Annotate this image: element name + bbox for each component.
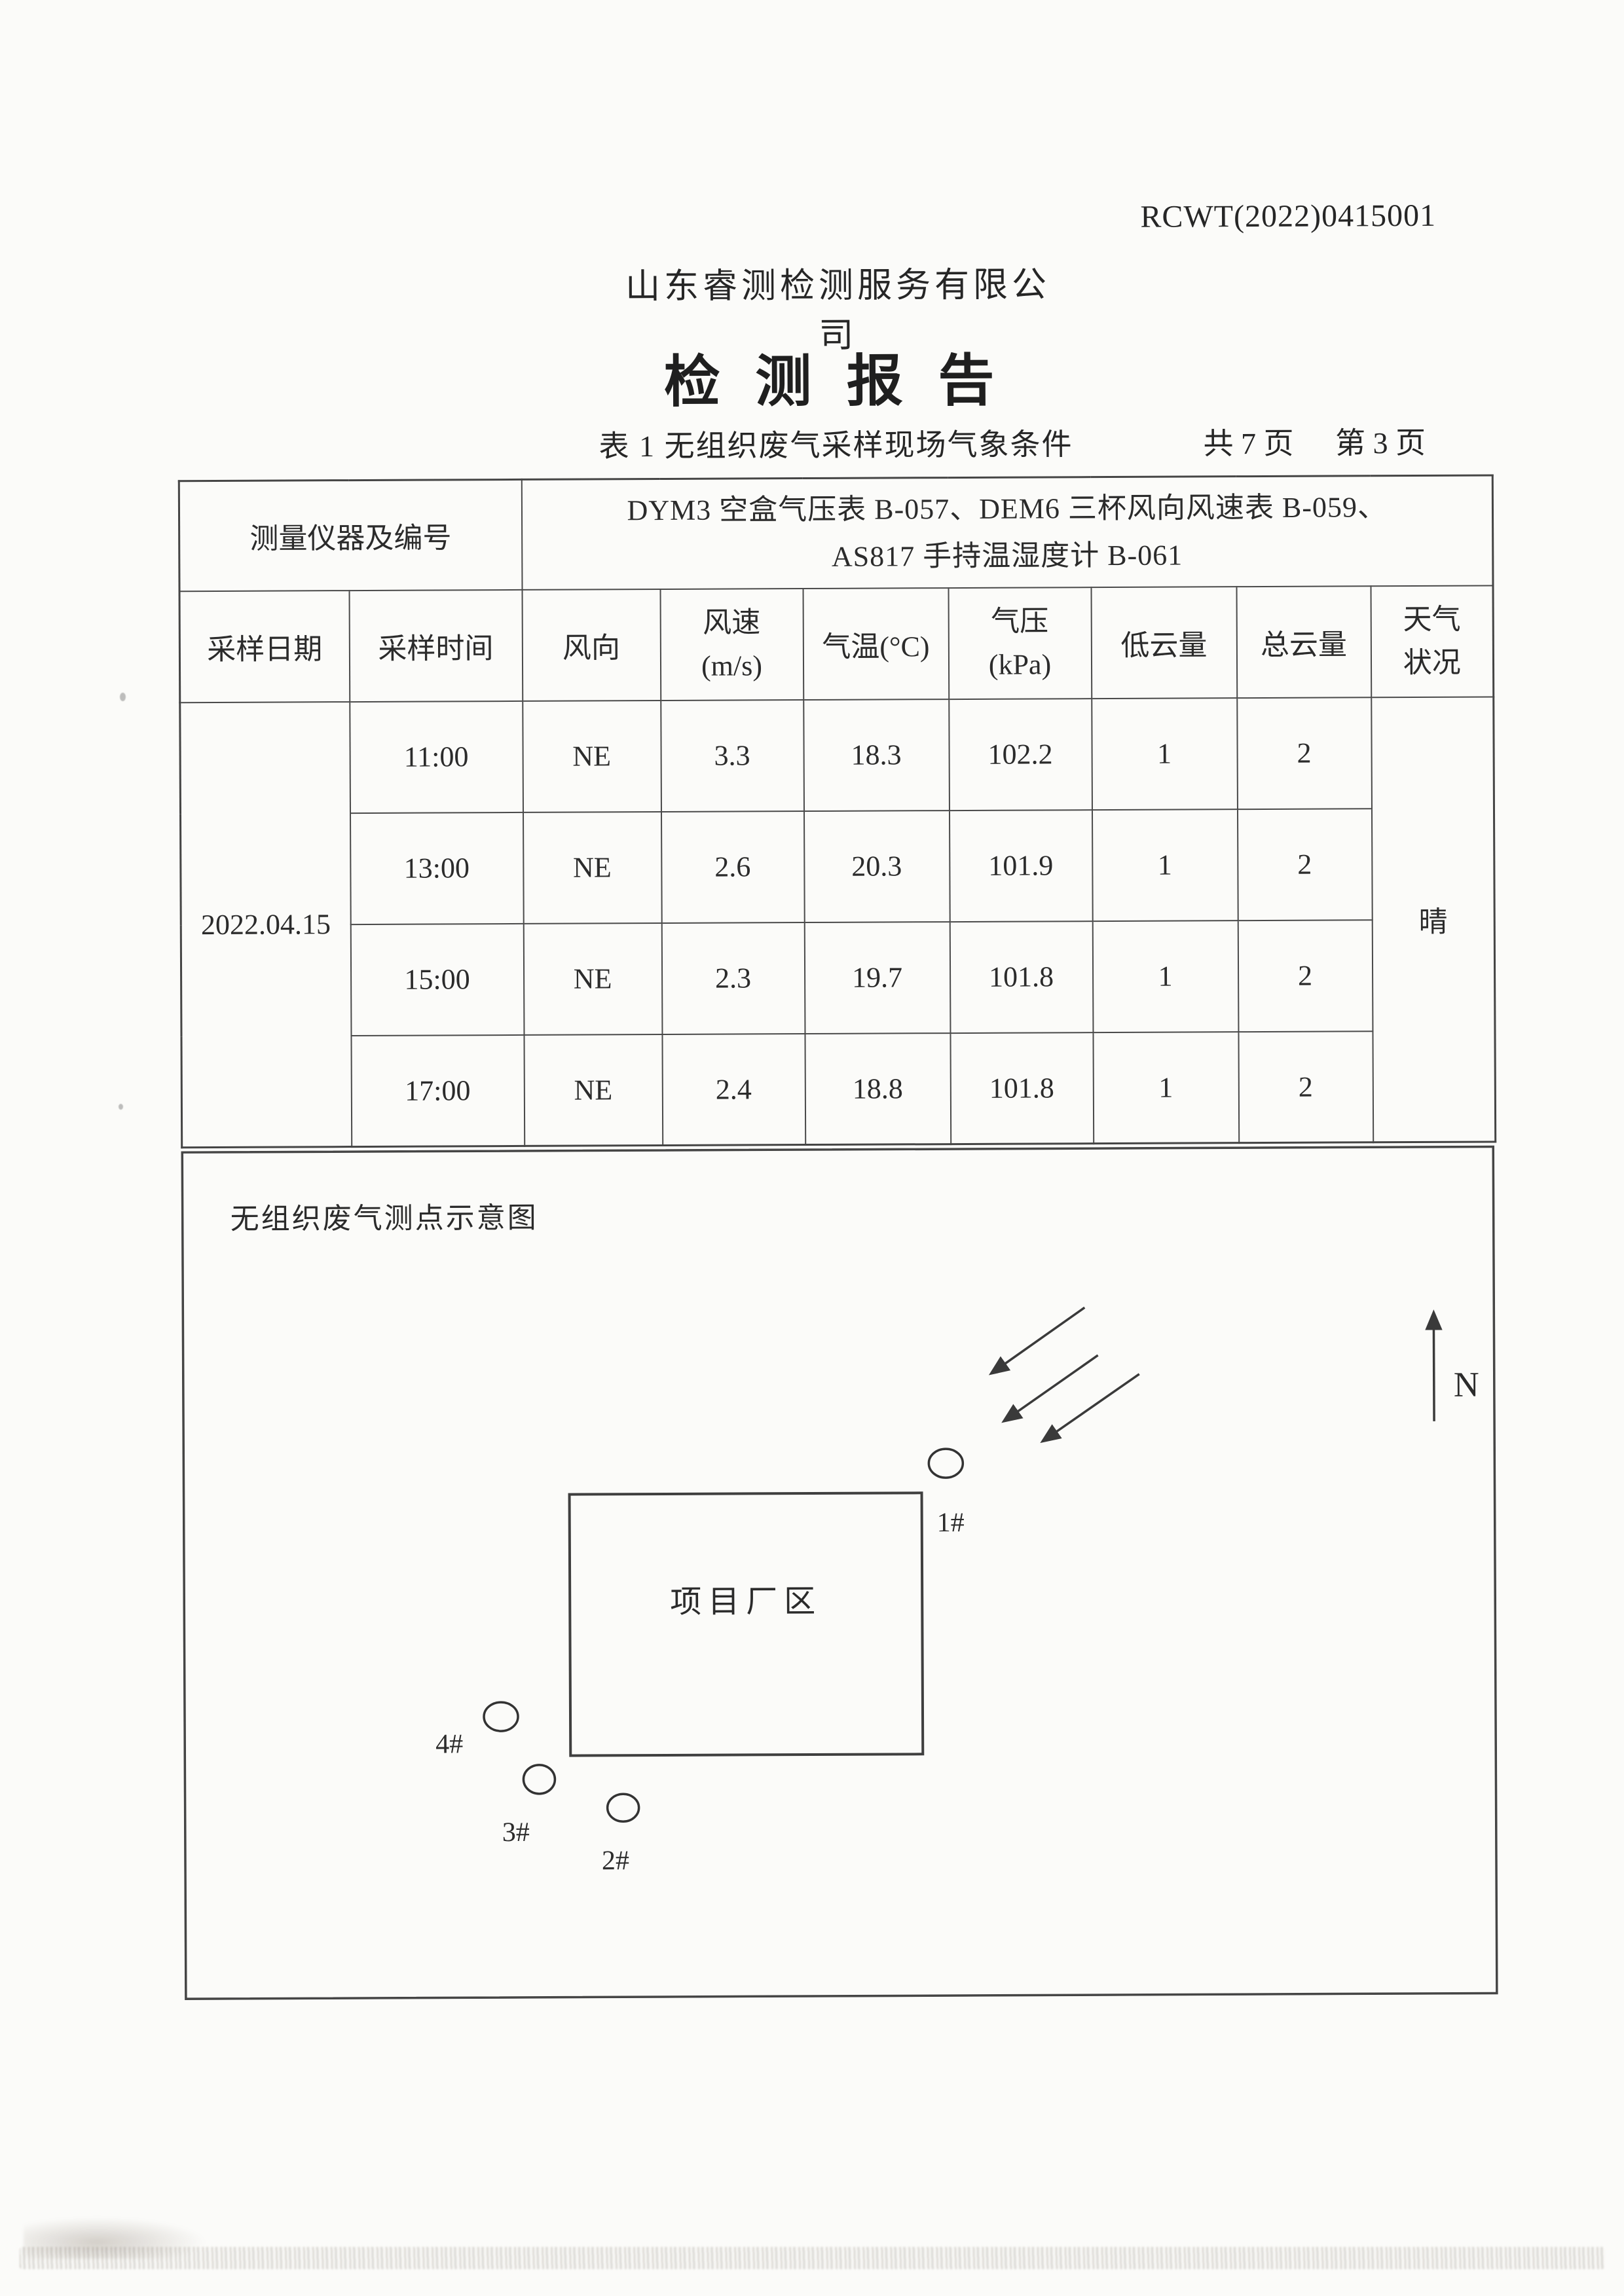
header-wind-speed-line1: 风速 (661, 601, 802, 645)
wind-direction-cell: NE (523, 701, 661, 812)
header-total-cloud: 总云量 (1236, 586, 1371, 698)
table-caption: 表 1 无组织废气采样现场气象条件 (599, 420, 1073, 465)
header-weather-line1: 天气 (1371, 598, 1492, 642)
total-cloud-cell: 2 (1238, 1031, 1373, 1143)
temperature-cell: 18.3 (803, 699, 950, 811)
header-sampling-time: 采样时间 (349, 589, 523, 701)
instrument-line-1: DYM3 空盒气压表 B-057、DEM6 三杯风向风速表 B-059、 (522, 484, 1492, 535)
header-weather-line2: 状况 (1371, 641, 1492, 685)
instrument-list-cell: DYM3 空盒气压表 B-057、DEM6 三杯风向风速表 B-059、 AS8… (521, 475, 1493, 589)
total-cloud-cell: 2 (1237, 697, 1372, 809)
table-header-row: 采样日期 采样时间 风向 风速 (m/s) 气温(°C) 气压 (kPa) 低云… (179, 585, 1494, 702)
sampling-point-circle-4 (484, 1702, 518, 1731)
header-wind-speed-line2: (m/s) (661, 644, 802, 688)
low-cloud-cell: 1 (1092, 698, 1238, 810)
instrument-label-cell: 测量仪器及编号 (179, 479, 522, 591)
wind-speed-cell: 2.6 (661, 811, 804, 923)
total-cloud-cell: 2 (1237, 809, 1372, 920)
scanned-page: RCWT(2022)0415001 山东睿测检测服务有限公司 检 测 报 告 表… (0, 0, 1624, 2296)
diagram-title: 无组织废气测点示意图 (231, 1194, 538, 1237)
table-row: 15:00 NE 2.3 19.7 101.8 1 2 (181, 919, 1495, 1036)
header-sampling-date: 采样日期 (179, 591, 350, 702)
table-row: 13:00 NE 2.6 20.3 101.9 1 2 (180, 808, 1494, 925)
report-title: 检 测 报 告 (625, 334, 1044, 418)
table-row: 17:00 NE 2.4 18.8 101.8 1 2 (181, 1030, 1496, 1148)
wind-direction-cell: NE (523, 922, 662, 1034)
pressure-cell: 101.8 (950, 921, 1093, 1033)
wind-speed-cell: 3.3 (661, 700, 804, 812)
plant-area-rect (570, 1493, 923, 1755)
sampling-date-cell: 2022.04.15 (180, 702, 352, 1148)
wind-direction-cell: NE (524, 1034, 663, 1146)
instrument-line-2: AS817 手持温湿度计 B-061 (523, 530, 1492, 581)
temperature-cell: 18.8 (805, 1033, 951, 1145)
temperature-cell: 20.3 (803, 811, 950, 922)
header-wind-direction: 风向 (522, 589, 661, 701)
header-low-cloud: 低云量 (1091, 587, 1237, 699)
sampling-point-label-2: 2# (602, 1846, 629, 1876)
weather-cell: 晴 (1371, 697, 1496, 1142)
header-weather: 天气 状况 (1371, 585, 1494, 697)
diagram-border (182, 1146, 1497, 1999)
header-pressure-line2: (kPa) (949, 643, 1090, 687)
report-number: RCWT(2022)0415001 (1109, 198, 1436, 235)
header-wind-speed: 风速 (m/s) (660, 589, 803, 701)
scan-artifact-speck (119, 1104, 123, 1110)
header-pressure: 气压 (kPa) (948, 587, 1092, 699)
wind-direction-cell: NE (523, 811, 661, 923)
plant-area-label: 项目厂区 (670, 1584, 822, 1620)
pressure-cell: 101.8 (950, 1032, 1094, 1144)
low-cloud-cell: 1 (1092, 920, 1238, 1032)
header-pressure-line1: 气压 (949, 600, 1090, 644)
table-row: 2022.04.15 11:00 NE 3.3 18.3 102.2 1 2 晴 (180, 697, 1494, 814)
sampling-point-circle-1 (929, 1449, 963, 1478)
time-cell: 13:00 (350, 812, 523, 924)
time-cell: 15:00 (350, 923, 524, 1035)
sampling-point-circle-3 (523, 1765, 555, 1794)
pressure-cell: 101.9 (949, 810, 1092, 922)
meteorological-conditions-table: 测量仪器及编号 DYM3 空盒气压表 B-057、DEM6 三杯风向风速表 B-… (178, 474, 1497, 1148)
scan-artifact-speck (120, 693, 126, 701)
low-cloud-cell: 1 (1093, 1032, 1239, 1144)
north-arrow (1433, 1313, 1434, 1421)
table-caption-row: 表 1 无组织废气采样现场气象条件 共 7 页 第 3 页 (0, 418, 1621, 465)
wind-speed-cell: 2.3 (661, 922, 805, 1034)
sampling-point-label-3: 3# (502, 1817, 530, 1848)
sampling-point-label-4: 4# (435, 1729, 463, 1759)
pages-total: 共 7 页 (1203, 427, 1293, 461)
time-cell: 17:00 (351, 1034, 525, 1146)
low-cloud-cell: 1 (1092, 809, 1238, 921)
pressure-cell: 102.2 (949, 699, 1092, 811)
sampling-point-label-1: 1# (937, 1508, 965, 1538)
time-cell: 11:00 (350, 701, 523, 812)
header-temperature: 气温(°C) (803, 588, 949, 700)
page-current: 第 3 页 (1335, 426, 1426, 460)
north-label: N (1454, 1365, 1479, 1404)
wind-speed-cell: 2.4 (662, 1034, 805, 1146)
temperature-cell: 19.7 (804, 922, 950, 1034)
page-indicator: 共 7 页 第 3 页 (1203, 419, 1426, 463)
total-cloud-cell: 2 (1238, 920, 1373, 1032)
sampling-points-diagram: N 项目厂区 1# 4# 3# 2# (181, 1145, 1498, 2000)
wind-arrow-1 (991, 1307, 1084, 1374)
sampling-point-circle-2 (608, 1794, 639, 1821)
scan-artifact-bottom-band (20, 2247, 1604, 2269)
table-row: 测量仪器及编号 DYM3 空盒气压表 B-057、DEM6 三杯风向风速表 B-… (179, 475, 1493, 591)
